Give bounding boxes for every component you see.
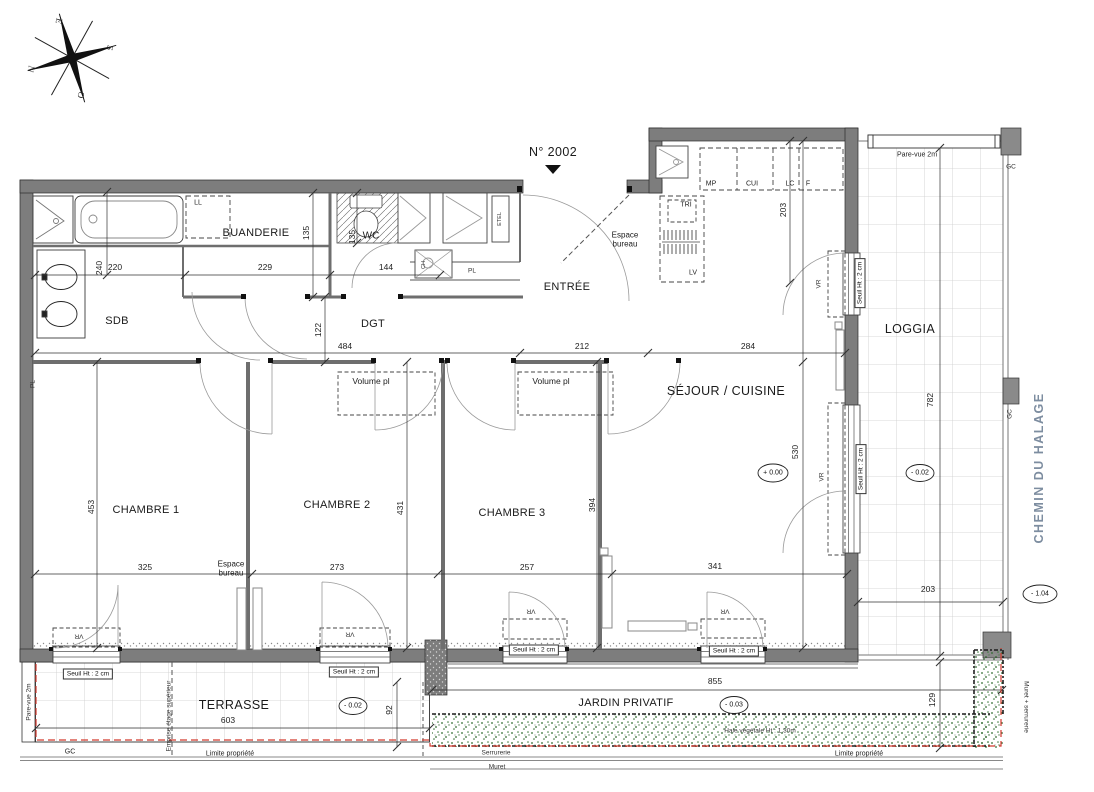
dim-dgt-h: 122 <box>313 323 323 337</box>
dim-jardin-w: 855 <box>708 676 722 686</box>
pare-vue-bar-top <box>868 135 1000 148</box>
lc-label: LC <box>786 181 795 188</box>
limite-right: Limite propriété <box>835 751 883 758</box>
cui-label: CUI <box>746 181 758 188</box>
door-jambs <box>49 186 767 651</box>
room-chambre-2: CHAMBRE 2 <box>304 499 371 511</box>
wc-label: WC <box>363 231 380 242</box>
dim-buanderie-h: 135 <box>301 226 311 240</box>
lv-label: LV <box>689 270 697 277</box>
level-terrasse: - 0.02 <box>344 703 362 710</box>
limite-left: Limite propriété <box>206 751 254 758</box>
dim-entree-w: 212 <box>575 341 589 351</box>
dim-sejour-h: 530 <box>790 445 800 459</box>
dim-terrasse-d: 92 <box>384 705 394 714</box>
kitchen-tri-lv-column <box>660 196 704 282</box>
emprise-label: Emprise étage supérieur <box>166 681 173 752</box>
room-sejour-cuisine: SÉJOUR / CUISINE <box>667 384 785 398</box>
ch-label: CH <box>421 261 427 269</box>
vr-ch3: VR <box>526 608 535 615</box>
room-jardin: JARDIN PRIVATIF <box>578 697 673 709</box>
vr-sejour: VR <box>720 608 729 615</box>
dim-sejour-w: 284 <box>741 341 755 351</box>
room-chambre-3: CHAMBRE 3 <box>479 507 546 519</box>
haie-label: Haie végétale Ht : 1.30m <box>724 728 796 735</box>
unit-number: N° 2002 <box>529 145 577 159</box>
seuil-ch2: Seuil Ht : 2 cm <box>329 667 379 678</box>
pare-vue-left: Pare-vue 2m <box>26 683 33 720</box>
tri-label: TRI <box>680 202 691 209</box>
level-sejour: + 0.00 <box>763 470 783 477</box>
muret-serrurerie-label: Muret + serrurerie <box>1023 681 1030 733</box>
volume-pl-ch2: Volume pl <box>352 376 389 386</box>
hall-cupboards <box>398 193 509 243</box>
pl-hall: PL <box>468 268 476 275</box>
pl-sdb: PL <box>30 380 37 388</box>
dim-cuisine-h: 203 <box>778 203 788 217</box>
room-entree: ENTRÉE <box>544 281 590 293</box>
room-terrasse: TERRASSE <box>199 698 270 712</box>
dim-sdb-w: 220 <box>108 262 122 272</box>
espace-bureau-cuisine: Espace bureau <box>607 231 643 248</box>
dim-ch3-h: 394 <box>587 498 597 512</box>
dashed-boxes <box>53 251 845 647</box>
bathtub <box>75 196 183 243</box>
seuil-ch3: Seuil Ht : 2 cm <box>509 645 559 656</box>
gc-top: GC <box>1006 164 1016 171</box>
dim-ch3-w: 257 <box>520 562 534 572</box>
gc-mid: GC <box>1007 409 1014 419</box>
etel-label: ETEL <box>497 212 503 226</box>
floor-plan-canvas: E S N O N° 2002 SDB BUANDERIE DGT ENTRÉE… <box>0 0 1094 792</box>
pare-vue-top: Pare-vue 2m <box>897 152 937 159</box>
kitchen-counter <box>700 148 843 190</box>
dim-loggia-w: 203 <box>921 584 935 594</box>
vr-ch1: VR <box>74 633 83 640</box>
dim-couloir-w: 484 <box>338 341 352 351</box>
mp-label: MP <box>706 181 717 188</box>
window-glazing-lines <box>53 253 854 657</box>
radiators <box>237 322 844 650</box>
seuil-loggia-2: Seuil Ht : 2 cm <box>856 444 867 494</box>
compass-rose <box>15 1 129 115</box>
level-loggia: - 0.02 <box>911 470 929 477</box>
vr-right-2: VR <box>819 472 826 481</box>
dim-sdb-d: 240 <box>94 261 104 275</box>
double-sink-vanity <box>37 250 85 338</box>
vr-ch2: VR <box>345 631 354 638</box>
dim-jardin-d: 129 <box>927 693 937 707</box>
ll-label: LL <box>194 200 202 207</box>
seuil-ch1: Seuil Ht : 2 cm <box>63 669 113 680</box>
level-jardin: - 0.03 <box>725 702 743 709</box>
room-buanderie: BUANDERIE <box>223 227 290 239</box>
dim-ch2-h: 431 <box>395 501 405 515</box>
level-chemin: - 1.04 <box>1031 591 1049 598</box>
volume-pl-ch3: Volume pl <box>532 376 569 386</box>
dim-terrasse-w: 603 <box>221 715 235 725</box>
kitchen-corner-sink <box>656 146 688 178</box>
vr-right-1: VR <box>816 279 823 288</box>
entrance-door-leaf <box>561 195 629 263</box>
hedge <box>432 650 1003 748</box>
dim-wc-w: 144 <box>379 262 393 272</box>
room-chambre-1: CHAMBRE 1 <box>113 504 180 516</box>
entrance-arrow <box>545 165 561 174</box>
seuil-sejour: Seuil Ht : 2 cm <box>709 646 759 657</box>
f-label: F <box>806 181 810 188</box>
dim-ch1-w: 325 <box>138 562 152 572</box>
room-dgt: DGT <box>361 318 385 330</box>
dim-ch1-h: 453 <box>86 500 96 514</box>
muret-label: Muret <box>489 764 506 771</box>
dim-loggia-h: 782 <box>925 393 935 407</box>
dim-sejour-b: 341 <box>708 561 722 571</box>
dim-buanderie-w: 229 <box>258 262 272 272</box>
shower-basin <box>33 196 73 243</box>
room-sdb: SDB <box>105 315 129 327</box>
room-loggia: LOGGIA <box>885 322 935 336</box>
gc-bottom: GC <box>65 749 76 756</box>
street-name: CHEMIN DU HALAGE <box>1032 392 1046 543</box>
dim-ch2-w: 273 <box>330 562 344 572</box>
seuil-loggia-1: Seuil Ht : 2 cm <box>855 258 866 308</box>
dim-wc-h: 135 <box>347 230 357 244</box>
espace-bureau-chambre: Espace bureau <box>213 560 249 577</box>
serrurerie-label: Serrurerie <box>482 750 511 757</box>
